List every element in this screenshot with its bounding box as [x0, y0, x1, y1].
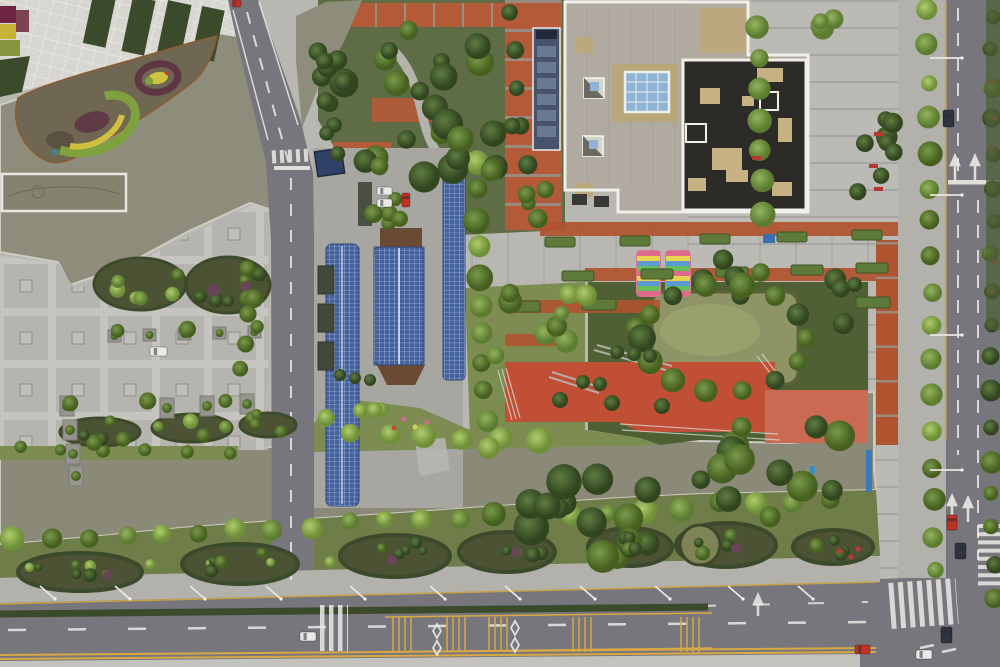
car-windshield	[380, 200, 383, 206]
blue-tarp	[763, 234, 775, 243]
lamp-head	[443, 597, 446, 600]
tree	[376, 511, 393, 528]
tree	[477, 410, 499, 432]
car-windshield	[304, 633, 307, 640]
tree	[923, 283, 942, 302]
tree	[25, 563, 34, 572]
purple-shrub	[103, 570, 113, 580]
tree	[55, 444, 66, 455]
canal-top-lawn	[0, 446, 238, 460]
tree	[921, 246, 940, 265]
tree	[34, 563, 42, 571]
tree	[760, 506, 781, 527]
car-windshield	[956, 547, 965, 550]
tree	[554, 306, 569, 321]
shrub	[349, 372, 361, 384]
tree	[219, 421, 231, 433]
tree	[724, 444, 755, 475]
canopy-stripe	[666, 251, 690, 257]
lamp-head	[593, 597, 596, 600]
tree	[922, 421, 942, 441]
tree	[824, 420, 855, 451]
tree	[139, 392, 156, 409]
roadside-verge	[986, 0, 1000, 330]
tree	[239, 305, 256, 322]
tree	[822, 480, 843, 501]
lamp-head	[128, 597, 131, 600]
car	[377, 199, 392, 207]
tree	[664, 286, 683, 305]
tree	[694, 379, 717, 402]
flower	[856, 547, 861, 552]
tree	[526, 428, 552, 454]
tree	[856, 134, 874, 152]
tree	[922, 459, 941, 478]
tree	[330, 146, 345, 161]
solar-array	[443, 170, 465, 380]
planter-shrub	[242, 399, 252, 409]
planter-shrub	[216, 329, 224, 337]
shrub	[654, 398, 670, 414]
aerial-photo-stage	[0, 0, 1000, 667]
tree	[145, 559, 155, 569]
car	[232, 0, 241, 7]
tree	[266, 558, 275, 567]
tree	[377, 543, 387, 553]
tree	[105, 416, 116, 427]
tree	[918, 141, 943, 166]
tree	[116, 432, 131, 447]
lamp-head	[811, 597, 814, 600]
tree	[917, 106, 940, 129]
tree	[261, 520, 282, 541]
car	[377, 187, 392, 195]
tree	[478, 437, 500, 459]
canal-railing	[866, 450, 872, 492]
tree	[381, 42, 398, 59]
tree	[829, 535, 840, 546]
tree	[119, 527, 137, 545]
tree	[787, 303, 809, 325]
tree	[765, 286, 785, 306]
tree	[833, 313, 854, 334]
tree	[695, 546, 710, 561]
tree	[42, 528, 62, 548]
tree	[766, 459, 793, 486]
shrub	[334, 369, 346, 381]
reflecting-pool	[2, 174, 126, 211]
tree	[669, 497, 694, 522]
tree	[399, 21, 418, 40]
purple-shrub	[731, 543, 741, 553]
car	[941, 627, 952, 643]
lamp-head	[741, 597, 744, 600]
tree	[419, 547, 428, 556]
solar-array	[374, 247, 424, 365]
tree	[468, 179, 488, 199]
hedge-planter	[852, 230, 882, 240]
tree	[251, 409, 262, 420]
tree	[79, 430, 90, 441]
tree	[411, 82, 430, 101]
hedge-planter	[777, 232, 807, 242]
tree	[411, 510, 431, 530]
tree	[634, 477, 660, 503]
tree	[575, 284, 597, 306]
tree	[397, 130, 416, 149]
tree	[487, 347, 505, 365]
tree	[410, 536, 422, 548]
tree	[15, 441, 27, 453]
tree	[71, 560, 80, 569]
lamp-head	[53, 597, 56, 600]
tree	[190, 525, 208, 543]
shrub	[364, 374, 376, 386]
car	[855, 645, 870, 654]
tree	[316, 52, 333, 69]
tree	[713, 250, 733, 270]
tree	[812, 13, 828, 29]
tree	[883, 113, 903, 133]
tree	[341, 512, 359, 530]
tree	[465, 33, 491, 59]
tree	[518, 185, 536, 203]
purple-shrub	[387, 555, 397, 565]
flower	[838, 549, 843, 554]
planter-shrub	[146, 331, 154, 339]
canopy-stripe	[637, 261, 660, 267]
tree	[197, 428, 211, 442]
tree	[301, 518, 323, 540]
tree	[430, 63, 458, 91]
tree	[694, 274, 717, 297]
lamp-head	[960, 333, 963, 336]
canopy-stripe	[666, 281, 690, 287]
lamp-head	[518, 597, 521, 600]
tree	[506, 41, 524, 59]
tree	[317, 92, 335, 110]
tree	[750, 202, 776, 228]
tree	[885, 143, 903, 161]
tree	[745, 15, 769, 39]
tree	[215, 556, 228, 569]
tree	[194, 290, 207, 303]
tree	[244, 289, 263, 308]
tree	[482, 502, 506, 526]
car	[916, 650, 932, 659]
tree	[805, 415, 828, 438]
tree	[466, 264, 493, 291]
tree	[628, 542, 642, 556]
tree	[577, 507, 607, 537]
canopy-stripe	[666, 261, 690, 267]
car	[300, 632, 316, 641]
tree	[528, 209, 548, 229]
car-windshield	[944, 114, 953, 117]
tree	[983, 420, 999, 436]
tree	[789, 352, 808, 371]
hedge-planter	[562, 271, 594, 281]
tree	[983, 519, 999, 535]
tree	[232, 361, 248, 377]
tree	[451, 510, 470, 529]
tree	[751, 169, 775, 193]
tree	[525, 547, 541, 563]
canopy-stripe	[637, 281, 660, 287]
planter-shrub	[68, 449, 78, 459]
tree	[409, 161, 440, 192]
flower	[392, 426, 397, 431]
tree	[750, 49, 768, 67]
tree	[181, 445, 194, 458]
shrub	[643, 349, 657, 363]
tree	[447, 126, 474, 153]
tree	[239, 260, 255, 276]
car-windshield	[154, 348, 157, 355]
tree	[927, 562, 943, 578]
tree	[480, 121, 506, 147]
tree	[766, 371, 785, 390]
tree	[392, 211, 408, 227]
tree	[80, 529, 98, 547]
tree	[729, 272, 755, 298]
shrub	[627, 347, 641, 361]
car	[943, 110, 954, 127]
bench	[752, 156, 761, 160]
tree	[367, 402, 383, 418]
bench	[874, 132, 883, 136]
tree	[380, 424, 400, 444]
car-windshield	[858, 646, 861, 653]
tree	[922, 527, 943, 548]
tree	[751, 263, 770, 282]
tree	[983, 486, 998, 501]
lamp-head	[203, 597, 206, 600]
tree	[915, 33, 937, 55]
tree	[694, 538, 704, 548]
tree	[474, 381, 492, 399]
tree	[732, 417, 752, 437]
blue-bin	[810, 466, 815, 474]
bench	[869, 164, 878, 168]
tree	[501, 284, 520, 303]
tree	[153, 421, 164, 432]
lamp-head	[279, 597, 282, 600]
tree	[111, 324, 125, 338]
tree	[218, 394, 232, 408]
tree	[111, 275, 124, 288]
tree	[509, 80, 525, 96]
tree	[586, 540, 619, 573]
tree	[481, 160, 502, 181]
canopy-stripe	[637, 286, 660, 292]
tree	[370, 157, 388, 175]
hedge-planter	[856, 297, 890, 308]
shrub	[593, 377, 607, 391]
tree	[353, 403, 368, 418]
planter-shrub	[65, 425, 75, 435]
tree	[661, 368, 685, 392]
glass-corridor	[533, 28, 560, 150]
hedge-planter	[856, 263, 888, 273]
flower	[402, 417, 407, 422]
lamp-head	[960, 193, 963, 196]
tree	[183, 414, 198, 429]
tree	[920, 349, 941, 370]
car	[947, 515, 957, 530]
hedge-planter	[545, 237, 575, 247]
lamp-head	[960, 56, 963, 59]
tree	[452, 429, 472, 449]
canopy-stripe	[637, 291, 660, 297]
canopy-stripe	[637, 251, 660, 257]
tree	[534, 493, 561, 520]
shrub	[604, 395, 620, 411]
flower	[849, 555, 854, 560]
tree	[62, 395, 78, 411]
tree	[873, 168, 889, 184]
car-windshield	[234, 1, 236, 6]
hedge-planter	[641, 269, 673, 279]
purple-shrub	[208, 284, 220, 296]
tree	[71, 569, 81, 579]
tree	[171, 268, 184, 281]
dark-roof-wing	[683, 60, 806, 210]
flower	[413, 425, 418, 430]
tree	[920, 210, 940, 230]
hedge-planter	[791, 265, 823, 275]
planter-shrub	[71, 471, 81, 481]
tree	[504, 118, 521, 135]
tree	[920, 383, 942, 405]
car-windshield	[380, 188, 383, 194]
tree	[537, 181, 554, 198]
tree	[797, 329, 816, 348]
tree	[258, 548, 267, 557]
planter-shrub	[202, 401, 212, 411]
car-windshield	[942, 631, 951, 634]
canopy-stripe	[637, 256, 660, 262]
lamp-head	[960, 468, 963, 471]
tree	[324, 556, 335, 567]
tree	[809, 538, 824, 553]
tree	[401, 545, 410, 554]
bench	[874, 187, 883, 191]
lamp-head	[668, 597, 671, 600]
car-windshield	[948, 518, 956, 521]
tree	[224, 447, 237, 460]
flower	[425, 420, 430, 425]
tree	[237, 336, 254, 353]
tree	[318, 409, 336, 427]
tree	[582, 464, 613, 495]
tree	[748, 109, 772, 133]
tree	[847, 277, 862, 292]
car	[150, 347, 167, 356]
shrub	[610, 345, 624, 359]
car-windshield	[920, 651, 923, 658]
tree	[83, 568, 97, 582]
tree	[341, 424, 360, 443]
tree	[832, 279, 850, 297]
tree	[165, 287, 179, 301]
tree	[133, 291, 147, 305]
tree	[920, 180, 939, 199]
tree	[471, 322, 492, 343]
tree	[222, 295, 234, 307]
tree	[733, 381, 752, 400]
tree	[849, 183, 866, 200]
shrub	[576, 375, 590, 389]
planting-bed	[182, 544, 298, 584]
tree	[250, 418, 261, 429]
tree	[921, 75, 937, 91]
skylight-glass	[625, 72, 669, 112]
tree	[518, 155, 537, 174]
purple-shrub	[511, 547, 521, 557]
hedge-planter	[620, 236, 650, 246]
aerial-photo	[0, 0, 1000, 667]
car-windshield	[403, 196, 409, 199]
tree	[0, 526, 25, 551]
shrub	[552, 392, 568, 408]
tree	[716, 486, 742, 512]
tree	[501, 4, 518, 21]
planter-shrub	[162, 403, 172, 413]
tree	[640, 305, 659, 324]
tree	[319, 126, 334, 141]
tree	[463, 208, 490, 235]
hedge-planter	[700, 234, 730, 244]
tree	[224, 518, 245, 539]
tree	[275, 425, 287, 437]
tree	[384, 70, 410, 96]
tree	[982, 347, 1000, 365]
lamp-head	[363, 597, 366, 600]
car	[955, 543, 966, 559]
tree	[692, 470, 711, 489]
canopy-stripe	[666, 256, 690, 262]
tree	[502, 546, 512, 556]
tree	[179, 321, 196, 338]
tree	[334, 72, 353, 91]
tree	[468, 235, 490, 257]
tree	[250, 320, 263, 333]
tree	[470, 295, 493, 318]
tree	[922, 316, 942, 336]
tree	[153, 524, 172, 543]
tree	[748, 78, 770, 100]
tree	[923, 488, 946, 511]
tree	[138, 443, 151, 456]
purple-shrub	[241, 281, 251, 291]
car	[402, 193, 410, 207]
